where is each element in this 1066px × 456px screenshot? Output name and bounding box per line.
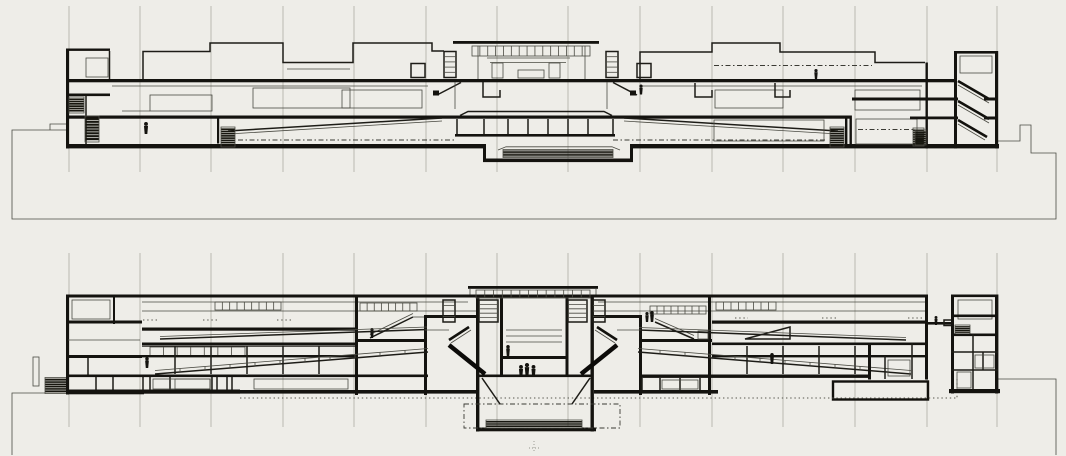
person-figure [650, 311, 654, 315]
person-figure [525, 363, 529, 367]
solid-slab [910, 117, 958, 120]
solid-slab [850, 116, 852, 148]
solid-slab [483, 159, 633, 163]
solid-slab [142, 328, 357, 331]
solid-slab [455, 134, 615, 137]
solid-slab [217, 116, 219, 144]
person-figure [519, 369, 523, 377]
solid-slab [712, 343, 927, 346]
person-figure [531, 369, 535, 377]
solid-slab [708, 297, 711, 395]
solid-slab [66, 49, 110, 51]
solid-slab [113, 297, 115, 324]
solid-slab [468, 286, 598, 289]
solid-slab [951, 315, 998, 318]
person-figure [935, 316, 938, 319]
solid-slab [951, 334, 998, 337]
person-figure [145, 357, 149, 361]
solid-slab [949, 389, 1000, 393]
person-figure [144, 122, 148, 126]
solid-slab [642, 339, 712, 342]
solid-slab [66, 390, 144, 395]
solid-slab [845, 116, 847, 148]
person-figure [645, 312, 648, 315]
person-figure [144, 126, 148, 134]
solid-slab [503, 356, 566, 359]
solid-slab [433, 91, 439, 96]
solid-slab [712, 321, 927, 324]
person-figure [506, 345, 510, 349]
person-figure [532, 365, 536, 369]
solid-slab [984, 117, 998, 120]
solid-slab [357, 339, 427, 342]
sections-canvas [0, 0, 1066, 456]
solid-slab [68, 79, 956, 82]
solid-slab [453, 41, 599, 44]
drawing-sheet [0, 0, 1066, 456]
solid-slab [66, 94, 110, 97]
solid-slab [852, 98, 958, 101]
solid-slab [630, 91, 636, 96]
solid-slab [144, 390, 240, 394]
solid-slab [954, 51, 998, 54]
solid-slab [927, 322, 953, 325]
solid-slab [633, 144, 999, 148]
person-figure [639, 85, 642, 88]
solid-slab [951, 295, 998, 298]
solid-slab [594, 390, 718, 394]
person-figure [145, 361, 149, 368]
solid-slab [142, 295, 927, 298]
person-figure [519, 365, 523, 369]
person-figure [770, 353, 774, 357]
solid-slab [142, 375, 428, 378]
solid-slab [66, 375, 144, 378]
solid-slab [954, 51, 957, 148]
solid-slab [479, 375, 593, 378]
solid-slab [500, 297, 503, 377]
solid-slab [995, 295, 998, 394]
solid-slab [925, 295, 928, 380]
solid-slab [66, 295, 69, 395]
solid-slab [951, 295, 954, 394]
solid-slab [68, 355, 142, 358]
solid-slab [868, 343, 871, 380]
solid-slab [984, 98, 998, 101]
solid-slab [240, 390, 476, 394]
solid-slab [142, 343, 357, 346]
solid-slab [68, 116, 850, 119]
solid-slab [68, 321, 142, 324]
architectural-section-drawing [0, 0, 1066, 456]
person-figure [506, 349, 510, 356]
solid-slab [66, 49, 69, 149]
person-figure [814, 69, 817, 72]
solid-slab [66, 144, 483, 148]
solid-slab [640, 375, 870, 378]
solid-slab [66, 295, 142, 298]
paper-background [0, 0, 1066, 456]
